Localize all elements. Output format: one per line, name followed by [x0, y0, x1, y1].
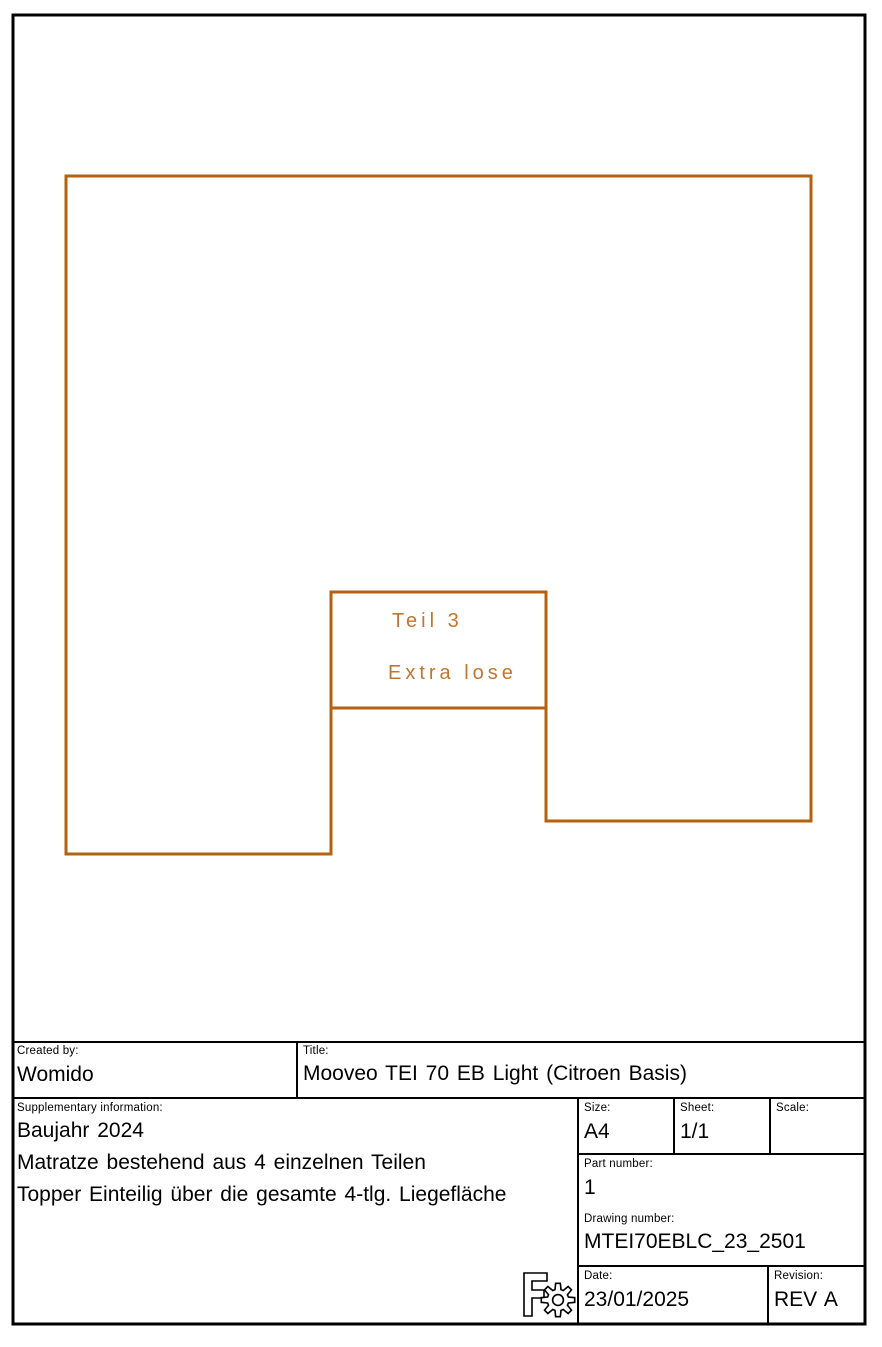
gear-icon [541, 1283, 574, 1316]
part-label: Teil 3 [392, 610, 463, 632]
supplementary-line: Baujahr 2024 [17, 1119, 144, 1142]
part-number-value: 1 [584, 1176, 596, 1199]
part-note: Extra lose [388, 662, 517, 684]
title-label: Title: [303, 1045, 329, 1058]
drawing-sheet: Teil 3 Extra lose Created by: Womido Tit… [0, 0, 882, 1347]
part-number-label: Part number: [584, 1158, 653, 1171]
sheet-value: 1/1 [680, 1120, 709, 1143]
supplementary-line: Topper Einteilig über die gesamte 4-tlg.… [17, 1183, 506, 1206]
title-value: Mooveo TEI 70 EB Light (Citroen Basis) [303, 1062, 687, 1085]
created-by-value: Womido [17, 1063, 94, 1086]
drawing-number-label: Drawing number: [584, 1213, 675, 1226]
size-value: A4 [584, 1120, 610, 1143]
supplementary-line: Matratze bestehend aus 4 einzelnen Teile… [17, 1151, 426, 1174]
logo-f-glyph [524, 1273, 547, 1316]
size-label: Size: [584, 1102, 611, 1115]
created-by-label: Created by: [17, 1045, 79, 1058]
date-value: 23/01/2025 [584, 1288, 689, 1311]
freecad-logo [524, 1273, 575, 1317]
supplementary-label: Supplementary information: [17, 1102, 163, 1115]
revision-value: REV A [774, 1288, 838, 1311]
part-outline [66, 176, 811, 854]
sheet-label: Sheet: [680, 1102, 714, 1115]
scale-label: Scale: [776, 1102, 809, 1115]
drawing-number-value: MTEI70EBLC_23_2501 [584, 1230, 806, 1253]
revision-label: Revision: [774, 1270, 823, 1283]
date-label: Date: [584, 1270, 613, 1283]
